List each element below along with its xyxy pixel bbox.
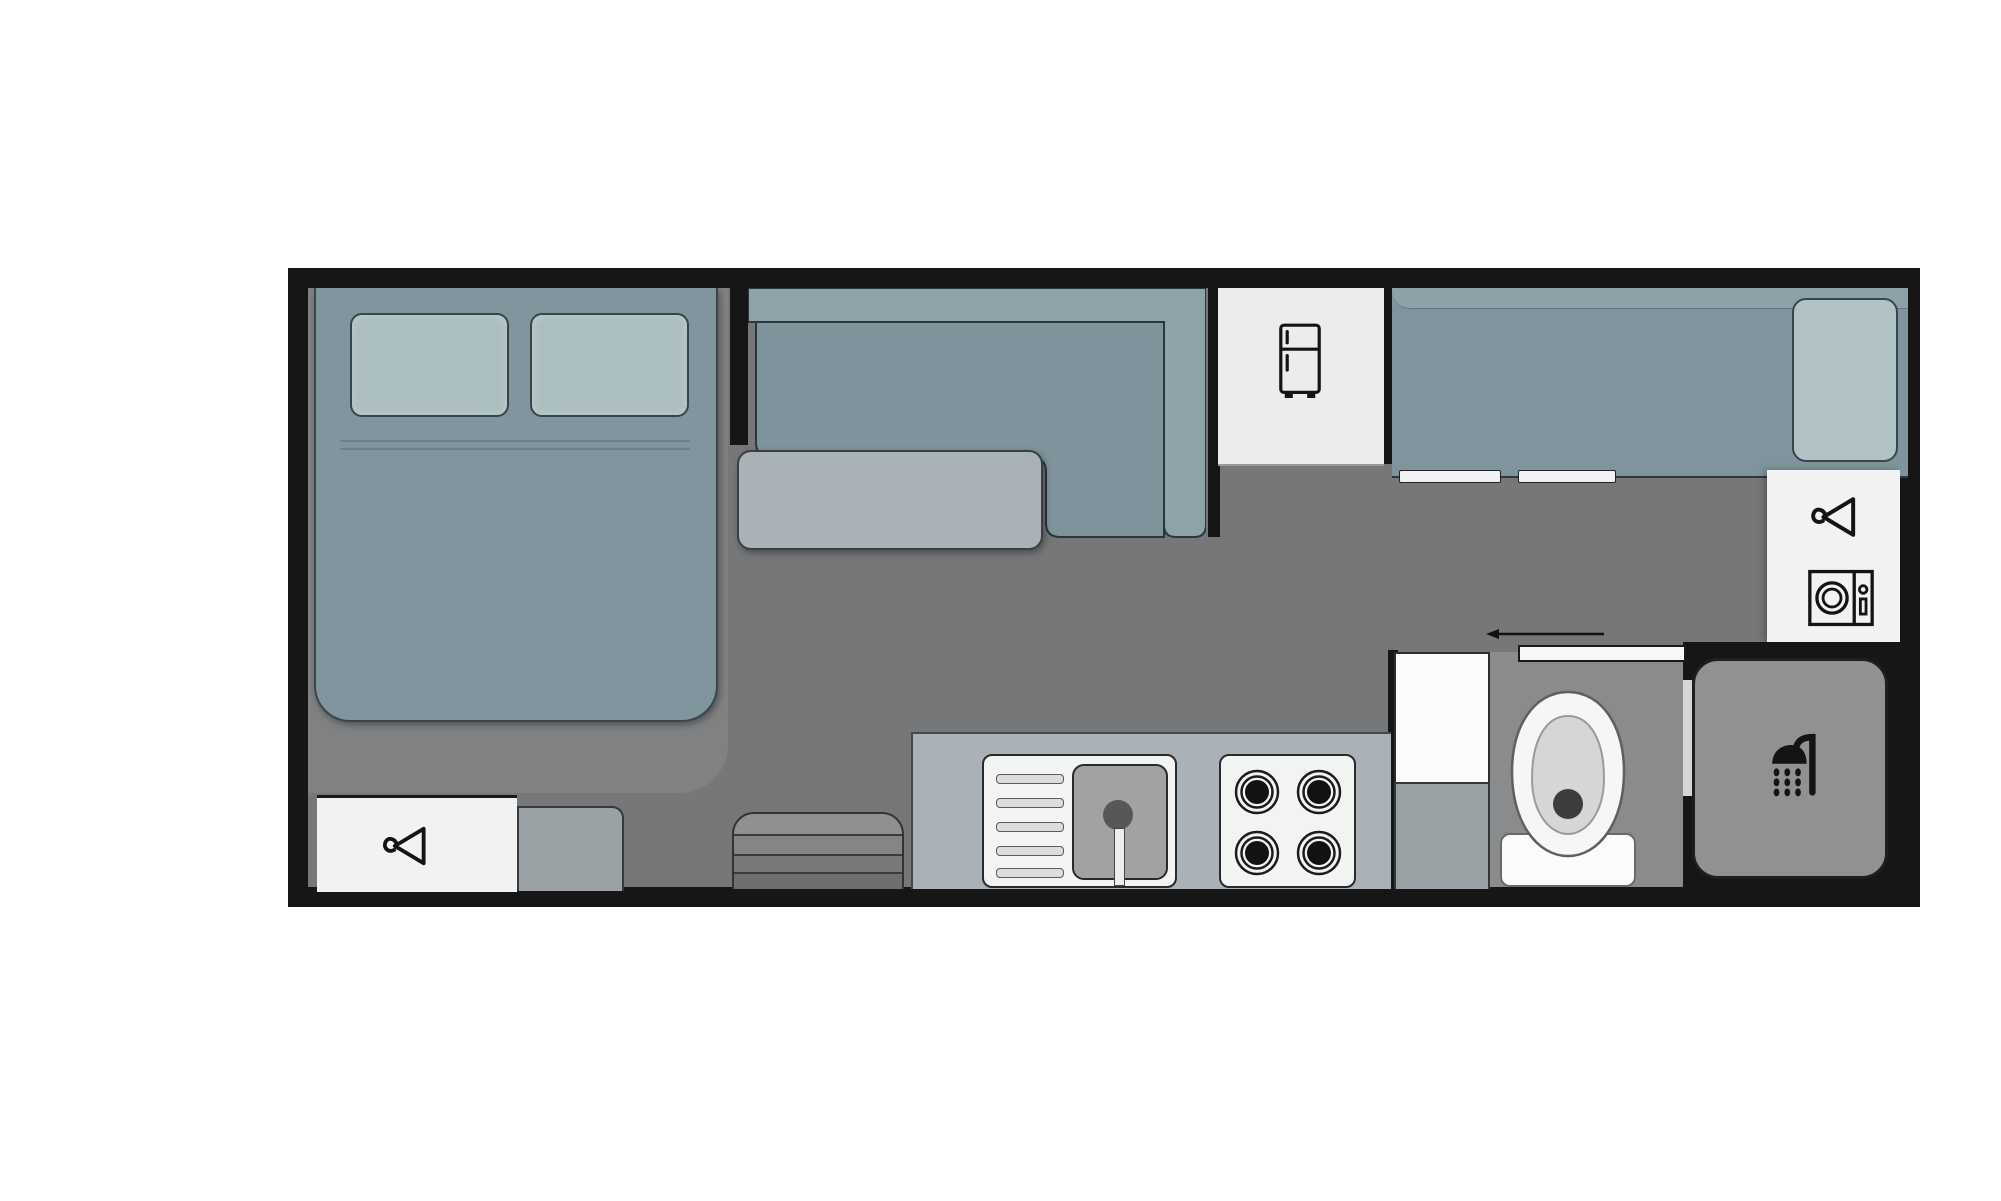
drawer-handle-left — [1399, 470, 1501, 483]
bed-fold-line — [340, 440, 690, 442]
toilet — [1488, 688, 1648, 888]
hanger-icon — [375, 814, 439, 878]
toilet-drain — [1553, 789, 1583, 819]
washing-machine-icon — [1807, 568, 1875, 628]
fridge-compartment — [1218, 288, 1384, 466]
pillow-left — [350, 313, 509, 417]
shower-tray — [1692, 658, 1888, 879]
end-cushion — [1792, 298, 1898, 462]
bedroom-wardrobe — [317, 795, 517, 892]
bedside-cabinet — [517, 806, 624, 891]
drainer-bar — [996, 846, 1064, 856]
drawer-handle-right — [1518, 470, 1616, 483]
bedroom-partition-wall — [730, 268, 748, 445]
shower-screen — [1683, 680, 1692, 796]
pillow-right — [530, 313, 689, 417]
sink-drain — [1103, 800, 1133, 830]
drainer-bar — [996, 774, 1064, 784]
step-tread — [734, 836, 902, 856]
door-direction-arrow — [1484, 626, 1606, 642]
lounge-sofa — [1392, 288, 1908, 478]
drainer-bar — [996, 798, 1064, 808]
drainer-bar — [996, 822, 1064, 832]
hanger-icon — [1803, 484, 1869, 550]
entry-steps — [732, 812, 904, 889]
utility-closet — [1767, 470, 1900, 642]
bed-fold-line — [340, 448, 690, 450]
vanity-cabinet — [1394, 782, 1490, 889]
drainer-bar — [996, 868, 1064, 878]
sliding-door — [1518, 645, 1686, 662]
fridge-icon — [1276, 320, 1324, 404]
step-tread — [734, 874, 902, 889]
sink-unit — [982, 754, 1177, 888]
vanity-unit — [1394, 652, 1490, 786]
dinette-table — [737, 450, 1043, 550]
step-tread — [734, 856, 902, 874]
shower-icon — [1755, 729, 1821, 807]
caravan-floor-plan — [288, 268, 1920, 907]
step-tread — [734, 814, 902, 836]
faucet — [1114, 828, 1125, 886]
stove — [1219, 754, 1356, 888]
burners — [1221, 756, 1354, 886]
